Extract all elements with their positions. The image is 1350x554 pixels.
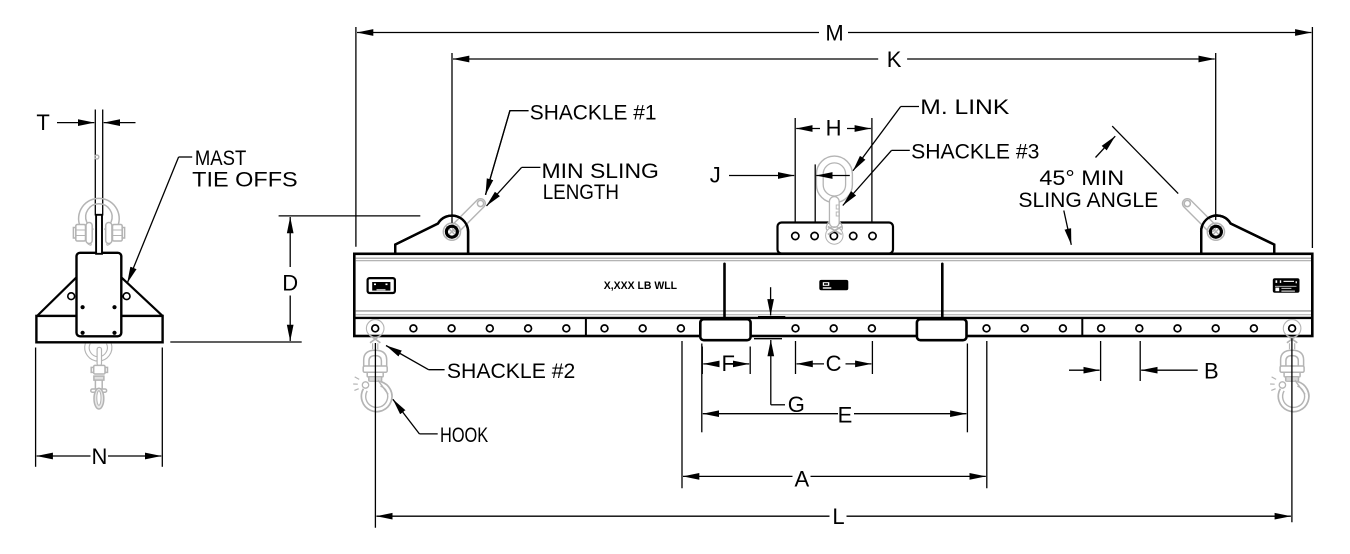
svg-text:SLING ANGLE: SLING ANGLE xyxy=(1018,189,1158,212)
svg-text:F: F xyxy=(721,351,734,376)
svg-text:X,XXX LB WLL: X,XXX LB WLL xyxy=(604,280,677,292)
svg-text:MAST: MAST xyxy=(195,147,247,170)
svg-text:M. LINK: M. LINK xyxy=(920,96,1009,119)
svg-text:H: H xyxy=(826,115,842,140)
svg-text:G: G xyxy=(788,392,805,417)
svg-text:K: K xyxy=(887,47,902,72)
svg-text:M: M xyxy=(825,20,843,45)
svg-text:L: L xyxy=(832,504,844,529)
svg-text:LENGTH: LENGTH xyxy=(543,181,619,204)
svg-text:J: J xyxy=(710,163,721,188)
svg-text:SHACKLE #2: SHACKLE #2 xyxy=(447,360,575,383)
svg-text:T: T xyxy=(36,110,49,135)
svg-text:N: N xyxy=(91,444,107,469)
svg-text:HOOK: HOOK xyxy=(440,424,488,447)
svg-text:D: D xyxy=(282,270,298,295)
svg-text:SHACKLE #1: SHACKLE #1 xyxy=(530,101,657,124)
svg-text:E: E xyxy=(838,403,853,428)
svg-text:A: A xyxy=(794,466,809,491)
svg-text:MIN SLING: MIN SLING xyxy=(542,160,659,183)
svg-text:B: B xyxy=(1204,359,1219,384)
svg-text:45° MIN: 45° MIN xyxy=(1039,167,1124,190)
svg-text:SHACKLE #3: SHACKLE #3 xyxy=(911,140,1039,163)
svg-text:TIE OFFS: TIE OFFS xyxy=(192,169,298,192)
svg-text:C: C xyxy=(826,351,842,376)
